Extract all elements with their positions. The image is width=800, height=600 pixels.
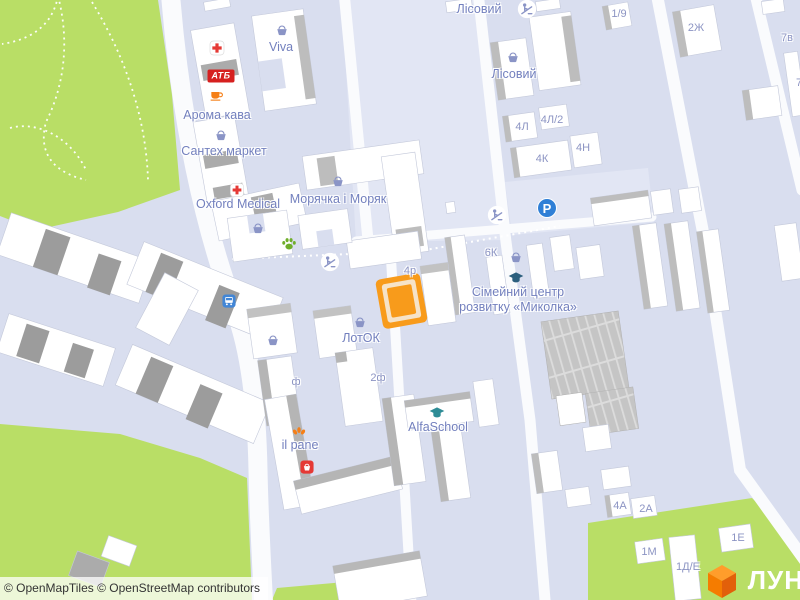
graduation-cap-icon[interactable] <box>508 270 524 286</box>
house-number: 4Л/2 <box>541 114 564 126</box>
house-number: 4Н <box>576 142 590 154</box>
house-number: 1М <box>641 546 656 558</box>
atb-store-icon[interactable]: АТБ <box>208 70 235 83</box>
house-number: 2Ж <box>688 22 704 34</box>
shopping-basket-icon[interactable] <box>353 315 368 330</box>
label-il-pane: il pane <box>282 438 319 452</box>
house-number-selected: 4р <box>404 265 416 277</box>
label-lotok: ЛотОК <box>342 331 380 345</box>
house-number: 2ф <box>370 372 385 384</box>
label-alfaschool: AlfaSchool <box>408 420 468 434</box>
house-number: 4К <box>536 153 549 165</box>
playground-icon[interactable] <box>517 0 537 19</box>
lun-logo-text: ЛУН <box>748 565 800 596</box>
bus-stop-icon[interactable] <box>222 294 237 309</box>
shopping-basket-icon[interactable] <box>266 333 281 348</box>
playground-icon[interactable] <box>320 252 340 272</box>
label-oxford-medical: Oxford Medical <box>196 197 280 211</box>
house-number: 6К <box>485 247 498 259</box>
house-number: 7в <box>781 32 793 44</box>
shopping-basket-icon[interactable] <box>509 250 524 265</box>
shopping-basket-icon[interactable] <box>251 221 266 236</box>
house-number: 2А <box>639 503 652 515</box>
coffee-cup-icon[interactable] <box>209 87 225 103</box>
label-aroma-kava: Арома кава <box>183 108 250 122</box>
playground-icon[interactable] <box>487 205 507 225</box>
parking-icon[interactable]: P <box>537 198 557 218</box>
house-number: 1Д/Е <box>676 561 700 573</box>
lun-logo[interactable]: ЛУН <box>702 560 800 600</box>
shopping-basket-icon[interactable] <box>214 128 229 143</box>
shopping-basket-icon[interactable] <box>275 23 290 38</box>
paw-icon[interactable] <box>281 236 298 253</box>
map-attribution[interactable]: © OpenMapTiles © OpenStreetMap contribut… <box>0 577 268 600</box>
house-number: 1/9 <box>611 8 626 20</box>
label-simeinyi-tsentr: Сімейний центр розвитку «Миколка» <box>459 285 577 315</box>
graduation-cap-icon[interactable] <box>429 405 445 421</box>
label-lisovyi-2: Лісовий <box>492 67 537 81</box>
label-lisovyi-top: Лісовий <box>457 2 502 16</box>
grocery-store-icon[interactable] <box>300 460 315 475</box>
house-number: 4А <box>613 500 626 512</box>
pharmacy-cross-icon[interactable] <box>230 183 245 198</box>
house-number: 1Е <box>731 532 744 544</box>
house-number: 4Л <box>515 121 528 133</box>
house-number: ф <box>291 376 300 388</box>
highlighted-building[interactable] <box>375 272 428 329</box>
label-moryachka: Морячка і Моряк <box>290 192 387 206</box>
lun-cube-logo <box>702 560 742 600</box>
label-santekh-market: Сантех маркет <box>181 144 266 158</box>
map-canvas[interactable] <box>0 0 800 600</box>
label-viva: Viva <box>269 40 293 54</box>
map-container[interactable]: АТБ P Лісовий Viva Арома кава Сантех мар… <box>0 0 800 600</box>
bakery-icon[interactable] <box>291 423 307 439</box>
shopping-basket-icon[interactable] <box>331 174 346 189</box>
house-number: 7 <box>796 77 800 89</box>
pharmacy-cross-icon[interactable] <box>209 40 225 56</box>
shopping-basket-icon[interactable] <box>506 50 521 65</box>
